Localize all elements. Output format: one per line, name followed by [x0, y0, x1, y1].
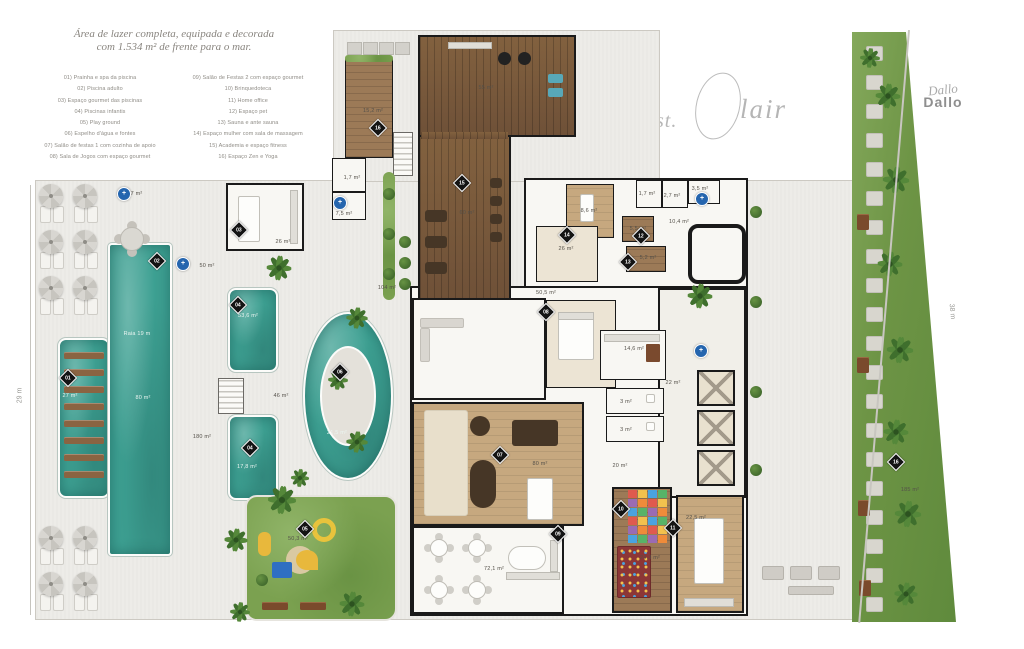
sun-lounger	[74, 594, 85, 611]
parasol-pole	[83, 194, 87, 198]
area-label: 26 m²	[275, 239, 290, 245]
area-label: 5,2 m²	[640, 255, 657, 261]
umbrella-lounger-set	[38, 572, 66, 612]
playroom-rug	[617, 546, 651, 598]
sun-lounger	[53, 252, 64, 269]
gourmet-counter	[290, 190, 298, 244]
palm-tree-icon	[344, 429, 370, 455]
area-label: 80 m²	[532, 461, 547, 467]
spa-wood-lounger	[64, 386, 104, 393]
playmat-tile	[658, 499, 667, 507]
parasol-pole	[49, 240, 53, 244]
parasol-pole	[83, 240, 87, 244]
spa-wood-lounger	[64, 454, 104, 461]
playmat-tile	[638, 508, 647, 516]
playmat-tile	[638, 517, 647, 525]
elevator-shaft	[697, 370, 735, 406]
deck-seat	[762, 566, 784, 580]
palm-tree-icon	[337, 589, 367, 619]
planter-bush	[750, 296, 762, 308]
area-label: 72,1 m²	[484, 566, 504, 572]
party2-counter	[506, 572, 560, 580]
sun-lounger	[53, 298, 64, 315]
stepping-stone	[866, 394, 883, 409]
kitchen-counter	[604, 334, 660, 342]
area-label: 22 m²	[665, 380, 680, 386]
pergola-4	[395, 42, 410, 55]
area-label: 22,5 m²	[686, 515, 706, 521]
area-label: 17,8 m²	[237, 464, 257, 470]
palm-tree-icon	[873, 81, 903, 111]
area-label: 60 m²	[459, 210, 474, 216]
playmat-tile	[648, 508, 657, 516]
area-label: 3 m²	[620, 427, 632, 433]
party1-round-table	[470, 416, 490, 436]
sun-lounger	[40, 594, 51, 611]
area-label: 55 m²	[478, 85, 493, 91]
sun-lounger	[53, 206, 64, 223]
stepping-stone	[866, 539, 883, 554]
party-table	[468, 539, 486, 557]
palm-tree-icon	[344, 305, 370, 331]
playground-slide	[296, 550, 318, 570]
area-label: 24,3 m²	[640, 555, 660, 561]
playmat-tile	[658, 490, 667, 498]
parasol-pole	[83, 536, 87, 540]
pergola-2	[363, 42, 378, 55]
parasol-pole	[49, 536, 53, 540]
area-label: 7,5 m²	[336, 211, 353, 217]
party-table	[468, 581, 486, 599]
gym-bench-2	[425, 236, 447, 248]
dimension-left: 29 m	[16, 388, 23, 404]
umbrella-lounger-set	[72, 572, 100, 612]
gym-mat-2	[548, 88, 563, 97]
gym-bike-4	[490, 232, 502, 242]
area-label: 80 m²	[135, 395, 150, 401]
sun-lounger	[87, 298, 98, 315]
dimension-right: 38 m	[948, 303, 956, 319]
spa-wood-lounger	[64, 471, 104, 478]
area-label: 14,6 m²	[624, 346, 644, 352]
info-marker: +	[176, 257, 190, 271]
area-label: Raia 19 m	[124, 331, 151, 337]
pool-lounge-set	[120, 227, 144, 251]
palm-tree-icon	[222, 526, 250, 554]
sun-lounger	[87, 206, 98, 223]
playground-slide-2	[258, 532, 271, 556]
playmat-tile	[648, 490, 657, 498]
pergola-1	[347, 42, 362, 55]
umbrella-lounger-set	[38, 230, 66, 270]
office-credenza	[684, 598, 734, 607]
planter-bush	[399, 278, 411, 290]
sun-lounger	[87, 548, 98, 565]
playmat-tile	[658, 508, 667, 516]
gym-bike-2	[490, 196, 502, 206]
party1-oval-table	[470, 460, 496, 508]
parasol-pole	[83, 582, 87, 586]
playmat-tile	[648, 499, 657, 507]
stepping-stone	[866, 307, 883, 322]
gym-mat-1	[548, 74, 563, 83]
wood-bench	[300, 602, 326, 610]
garden-bench	[857, 214, 869, 230]
playground-ring	[312, 518, 336, 542]
lounge-sofa-b	[420, 328, 430, 362]
parasol-pole	[49, 194, 53, 198]
area-label: 53,6 m²	[238, 313, 258, 319]
gym-plate-2	[518, 52, 531, 65]
gym-seam	[421, 132, 508, 139]
playmat-tile	[628, 490, 637, 498]
info-marker: +	[117, 187, 131, 201]
area-label: 10,4 m²	[669, 219, 689, 225]
palm-tree-icon	[881, 417, 911, 447]
stepping-stone	[866, 278, 883, 293]
area-label: 46 m²	[273, 393, 288, 399]
sun-lounger	[40, 548, 51, 565]
area-label: 27 m²	[62, 393, 77, 399]
sun-lounger	[40, 206, 51, 223]
lounge-sofa-a	[420, 318, 464, 328]
planter-bush	[399, 236, 411, 248]
info-marker: +	[694, 344, 708, 358]
garden-bench	[857, 357, 869, 373]
playmat-tile	[648, 526, 657, 534]
party1-table	[512, 420, 558, 446]
spa-wood-lounger	[64, 420, 104, 427]
umbrella-lounger-set	[72, 184, 100, 224]
gym-rack	[448, 42, 492, 49]
spa-wood-lounger	[64, 437, 104, 444]
sun-lounger	[40, 252, 51, 269]
gym-bike-1	[490, 178, 502, 188]
palm-tree-icon	[858, 46, 882, 70]
toilet-1	[646, 394, 655, 403]
room-gym-upper	[418, 35, 576, 137]
sun-lounger	[53, 594, 64, 611]
elevator-shaft	[697, 450, 735, 486]
area-label: 21,5 m²	[327, 430, 347, 436]
area-label: 50,5 m²	[536, 290, 556, 296]
deck-seat	[790, 566, 812, 580]
floorplan: 4,7 m²50 m²26 m²15,2 m²1,7 m²7,5 m²55 m²…	[0, 0, 1024, 649]
room-lounge	[412, 298, 546, 400]
umbrella-lounger-set	[72, 276, 100, 316]
playmat-tile	[658, 517, 667, 525]
info-marker: +	[695, 192, 709, 206]
stepping-stone	[866, 133, 883, 148]
area-label: 15,2 m²	[363, 108, 383, 114]
playmat-tile	[628, 526, 637, 534]
palm-tree-icon	[892, 580, 920, 608]
planter-bush	[383, 188, 395, 200]
sun-lounger	[74, 548, 85, 565]
area-label: 20 m²	[612, 463, 627, 469]
playmat-tile	[628, 535, 637, 543]
umbrella-lounger-set	[72, 230, 100, 270]
area-label: 3 m²	[620, 399, 632, 405]
parasol-pole	[49, 286, 53, 290]
playmat-tile	[658, 535, 667, 543]
sun-lounger	[74, 298, 85, 315]
palm-tree-icon	[892, 498, 924, 530]
deck-seat	[818, 566, 840, 580]
party-table	[430, 581, 448, 599]
area-label: 2,7 m²	[664, 193, 681, 199]
playground-cube	[272, 562, 292, 578]
sun-lounger	[87, 252, 98, 269]
playmat-tile	[638, 499, 647, 507]
stepping-stone	[866, 597, 883, 612]
elevator-shaft	[697, 410, 735, 446]
palm-tree-icon	[228, 600, 252, 624]
area-label: 26 m²	[558, 246, 573, 252]
party-table	[430, 539, 448, 557]
planter-bush	[399, 257, 411, 269]
party1-bar	[527, 478, 553, 520]
umbrella-lounger-set	[38, 526, 66, 566]
area-label: 8,6 m²	[581, 208, 598, 214]
playmat-tile	[648, 517, 657, 525]
umbrella-lounger-set	[72, 526, 100, 566]
area-label: 1,7 m²	[344, 175, 361, 181]
deck-table	[788, 586, 834, 595]
palm-tree-icon	[884, 334, 916, 366]
area-label: 1,7 m²	[639, 191, 656, 197]
sun-lounger	[74, 252, 85, 269]
wood-bench	[262, 602, 288, 610]
spa-wood-lounger	[64, 403, 104, 410]
sun-lounger	[53, 548, 64, 565]
planter-bush	[256, 574, 268, 586]
playmat-tile	[648, 535, 657, 543]
area-label: 104 m²	[378, 285, 396, 291]
planter-bush	[383, 268, 395, 280]
room-bath-2	[606, 416, 664, 442]
palm-tree-icon	[264, 253, 294, 283]
party2-counter-2	[550, 540, 558, 572]
pergola-3	[379, 42, 394, 55]
stepping-stone	[866, 452, 883, 467]
playmat-tile	[638, 490, 647, 498]
info-marker: +	[333, 196, 347, 210]
planter-bush	[383, 228, 395, 240]
palm-tree-icon	[289, 467, 311, 489]
entry-portal	[688, 224, 746, 284]
palm-tree-icon	[685, 281, 715, 311]
area-label: 180 m²	[193, 434, 211, 440]
floorplan-poster: Área de lazer completa, equipada e decor…	[0, 0, 1024, 649]
sun-lounger	[40, 298, 51, 315]
party1-rug	[424, 410, 468, 516]
stairs-top	[393, 132, 413, 176]
umbrella-lounger-set	[38, 184, 66, 224]
playmat-tile	[638, 526, 647, 534]
planter-bush	[750, 386, 762, 398]
playmat-tile	[628, 517, 637, 525]
gym-plate-1	[498, 52, 511, 65]
hedge-top	[345, 55, 393, 62]
sun-lounger	[87, 594, 98, 611]
sun-lounger	[74, 206, 85, 223]
planter-bush	[750, 464, 762, 476]
kitchen-cabinet	[646, 344, 660, 362]
party2-buffet	[508, 546, 546, 570]
relax-bed-pillows	[558, 312, 594, 320]
stairs-pool-deck	[218, 378, 244, 414]
gym-bench-3	[425, 262, 447, 274]
parasol-pole	[83, 286, 87, 290]
umbrella-lounger-set	[38, 276, 66, 316]
gym-bench-1	[425, 210, 447, 222]
area-label: 50 m²	[199, 263, 214, 269]
area-label: 185 m²	[901, 487, 919, 493]
parasol-pole	[49, 582, 53, 586]
room-bath-1	[606, 388, 664, 414]
planter-bush	[750, 206, 762, 218]
toilet-2	[646, 422, 655, 431]
playmat-tile	[628, 499, 637, 507]
spa-wood-lounger	[64, 352, 104, 359]
office-table	[694, 518, 724, 584]
playmat-tile	[638, 535, 647, 543]
gym-bike-3	[490, 214, 502, 224]
